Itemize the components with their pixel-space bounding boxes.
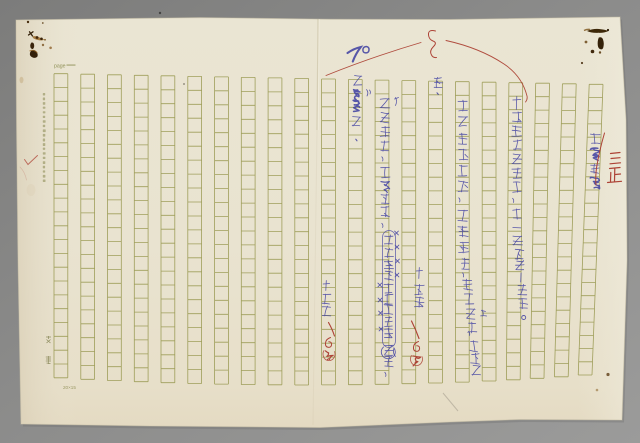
svg-text:20×15: 20×15 <box>63 385 76 390</box>
svg-text:page: page <box>54 64 66 70</box>
